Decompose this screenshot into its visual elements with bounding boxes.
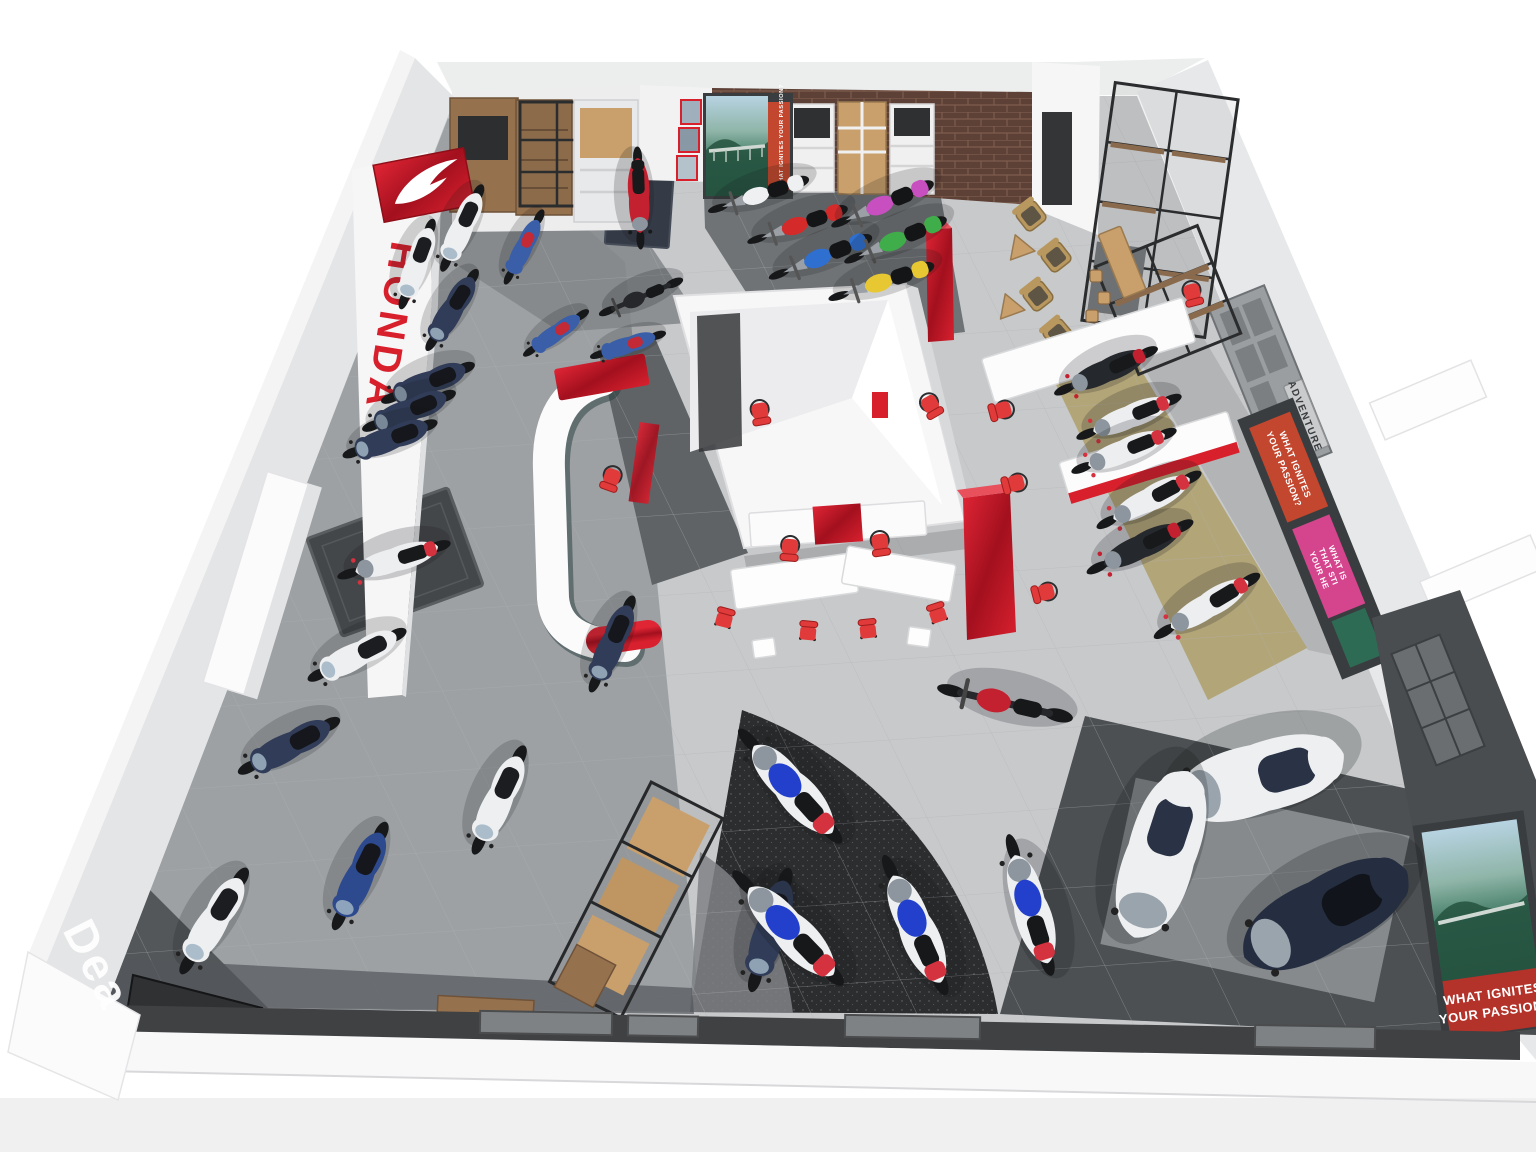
guest-chair xyxy=(858,618,878,639)
guest-chair xyxy=(798,620,818,641)
doorway-dark xyxy=(1042,112,1072,205)
cabinet-red-center xyxy=(813,503,864,544)
side-table-cube xyxy=(752,638,776,659)
right-wall-block-a xyxy=(1370,360,1487,440)
framed-poster-small-3 xyxy=(677,156,697,180)
bar-stool xyxy=(1086,310,1098,322)
scene-svg: WHAT IGNITES YOUR PASSION? ADVENTURE WHA… xyxy=(0,0,1536,1152)
showroom-render: WHAT IGNITES YOUR PASSION? ADVENTURE WHA… xyxy=(0,0,1536,1152)
side-table-cube xyxy=(907,627,931,648)
room-glass-partition xyxy=(697,313,742,452)
shelf-unit-wood-back xyxy=(580,108,632,158)
room-red-accent xyxy=(872,392,888,418)
bar-stool xyxy=(1098,292,1110,304)
exterior-ground xyxy=(0,1098,1536,1152)
framed-poster-small-2 xyxy=(679,128,699,152)
bar-stool xyxy=(1090,270,1102,282)
framed-poster-small-1 xyxy=(681,100,701,124)
office-chair xyxy=(780,535,800,561)
